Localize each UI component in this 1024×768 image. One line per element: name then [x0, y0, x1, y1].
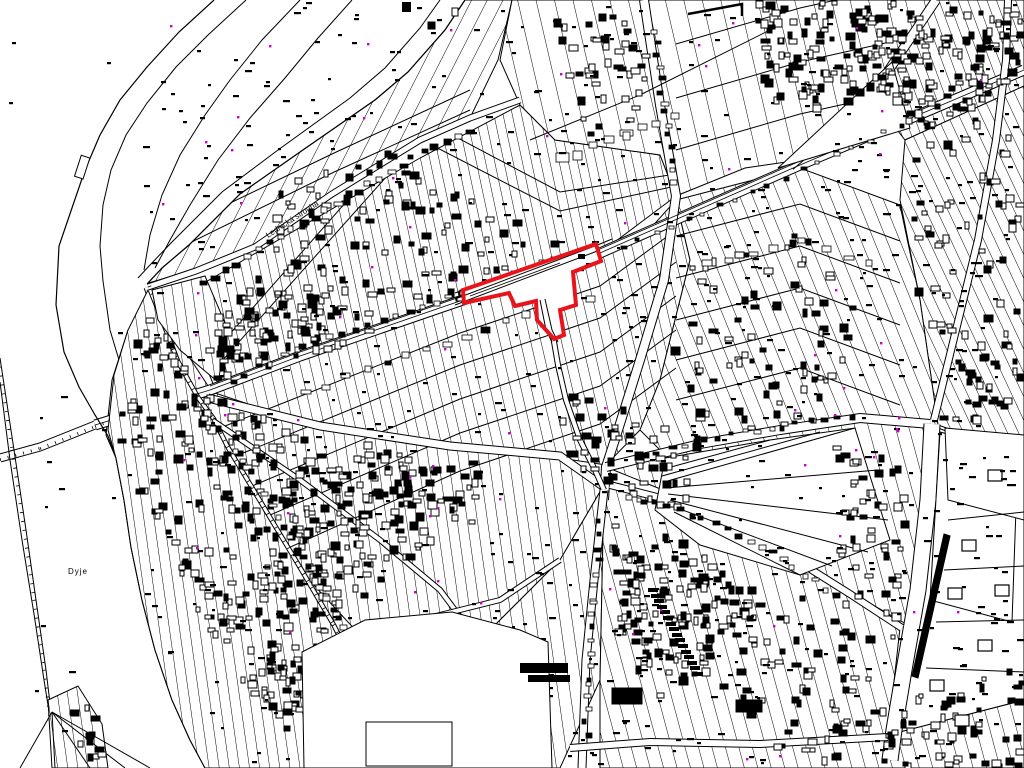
svg-text:Dyje: Dyje: [68, 567, 88, 576]
